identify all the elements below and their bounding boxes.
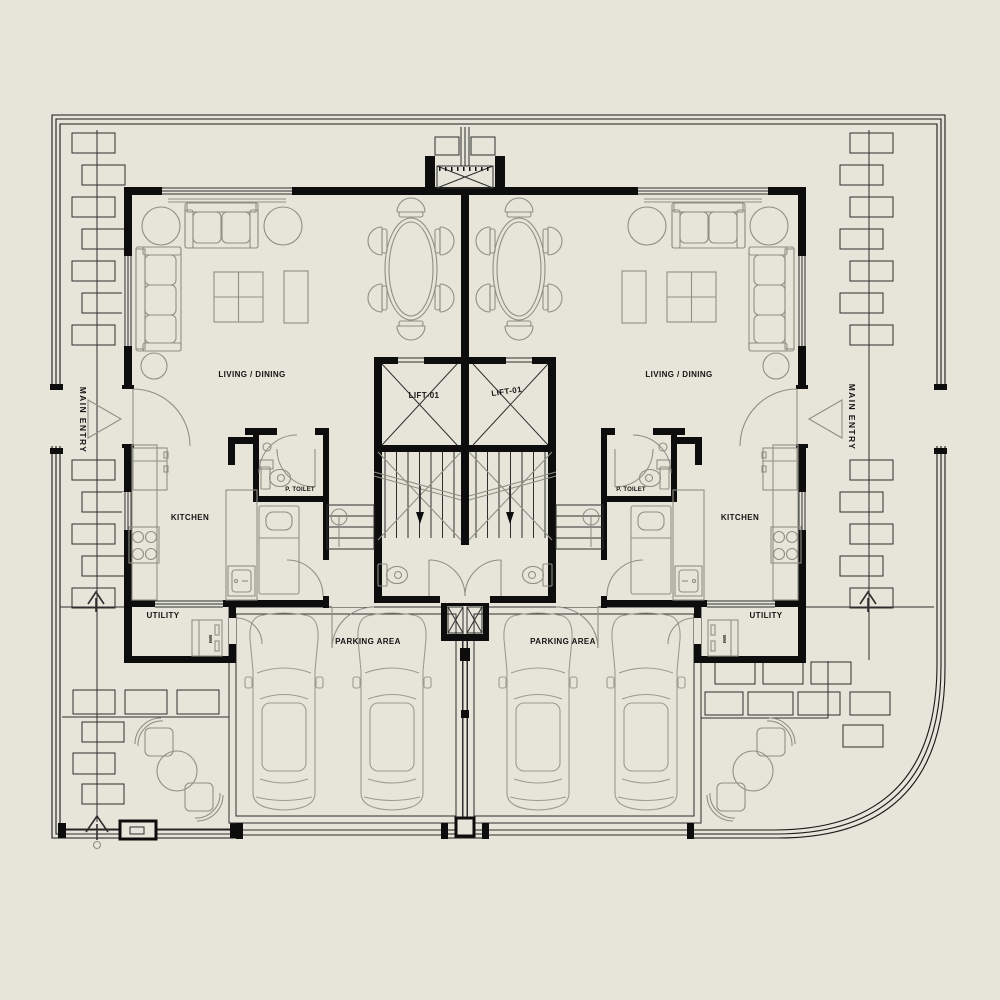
window <box>122 256 133 346</box>
window <box>155 599 223 608</box>
annotation-main-entry-left: MAIN ENTRY <box>78 387 88 454</box>
room-label-living-right: LIVING / DINING <box>645 370 712 379</box>
main-entry-gate-left <box>48 384 64 454</box>
room-label-lift-left: LIFT-01 <box>409 391 440 400</box>
room-label-kitchen-right: KITCHEN <box>721 513 759 522</box>
floor-plan-drawing: LIVING / DINING LIVING / DINING LIFT-01 … <box>0 0 1000 1000</box>
annotation-main-entry-right: MAIN ENTRY <box>847 384 857 451</box>
room-label-kitchen-left: KITCHEN <box>171 513 209 522</box>
annotation-wm-left: WM <box>208 635 213 643</box>
car-gate <box>236 823 448 842</box>
room-label-parking-right: PARKING AREA <box>530 637 596 646</box>
room-label-utility-left: UTILITY <box>146 611 179 620</box>
room-label-living-left: LIVING / DINING <box>218 370 285 379</box>
window <box>122 492 133 530</box>
room-label-ptoilet-right: P. TOILET <box>616 487 646 493</box>
window <box>162 185 292 202</box>
gate-post <box>456 818 474 836</box>
floor-plan-sheet: LIVING / DINING LIVING / DINING LIFT-01 … <box>0 0 1000 1000</box>
room-label-ptoilet-left: P. TOILET <box>285 487 315 493</box>
main-entry-gate-right <box>934 384 948 454</box>
room-label-parking-left: PARKING AREA <box>335 637 401 646</box>
annotation-wm-right: WM <box>722 635 727 643</box>
room-label-utility-right: UTILITY <box>749 611 782 620</box>
